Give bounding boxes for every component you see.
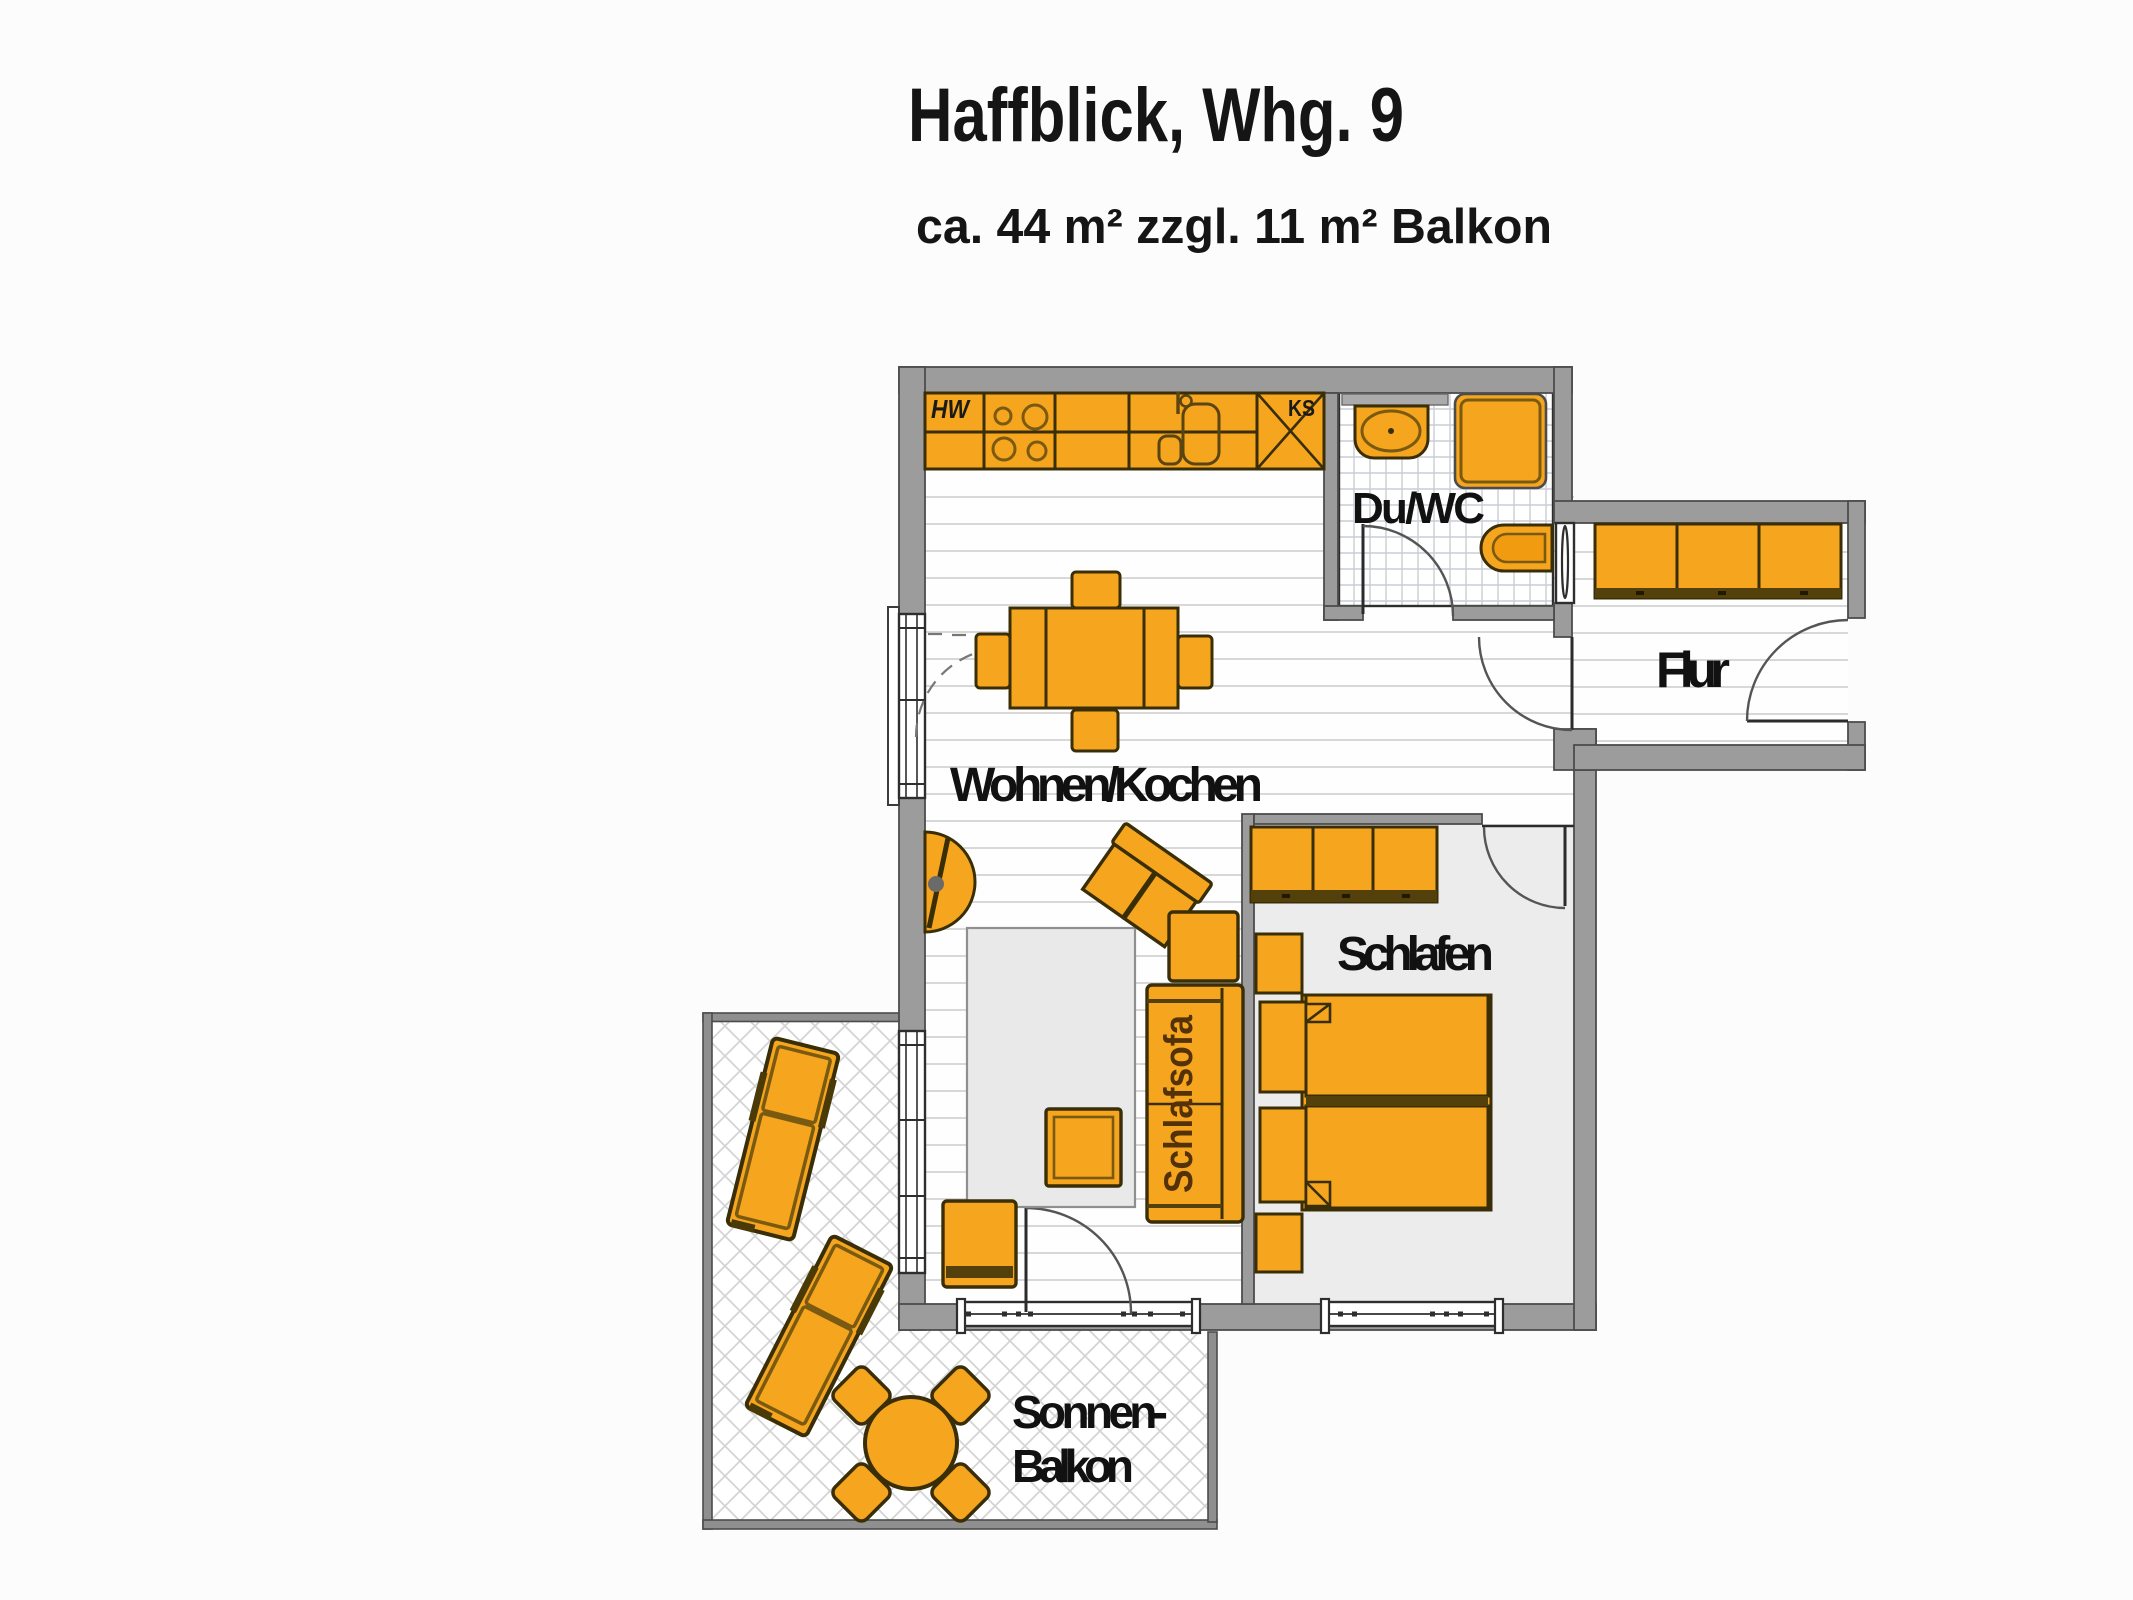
svg-text:HW: HW <box>931 394 971 424</box>
svg-text:Balkon: Balkon <box>1012 1440 1134 1492</box>
svg-text:Sonnen-: Sonnen- <box>1012 1386 1168 1438</box>
svg-text:Wohnen/Kochen: Wohnen/Kochen <box>950 759 1263 812</box>
svg-text:Flur: Flur <box>1656 642 1730 698</box>
svg-text:KS: KS <box>1288 395 1315 421</box>
svg-text:Schlafen: Schlafen <box>1337 928 1494 981</box>
svg-text:ca. 44 m² zzgl. 11 m² Balkon: ca. 44 m² zzgl. 11 m² Balkon <box>916 200 1552 254</box>
svg-text:Haffblick, Whg. 9: Haffblick, Whg. 9 <box>908 73 1404 158</box>
svg-text:Du/WC: Du/WC <box>1352 484 1485 533</box>
svg-text:Schlafsofa: Schlafsofa <box>1157 1014 1201 1193</box>
